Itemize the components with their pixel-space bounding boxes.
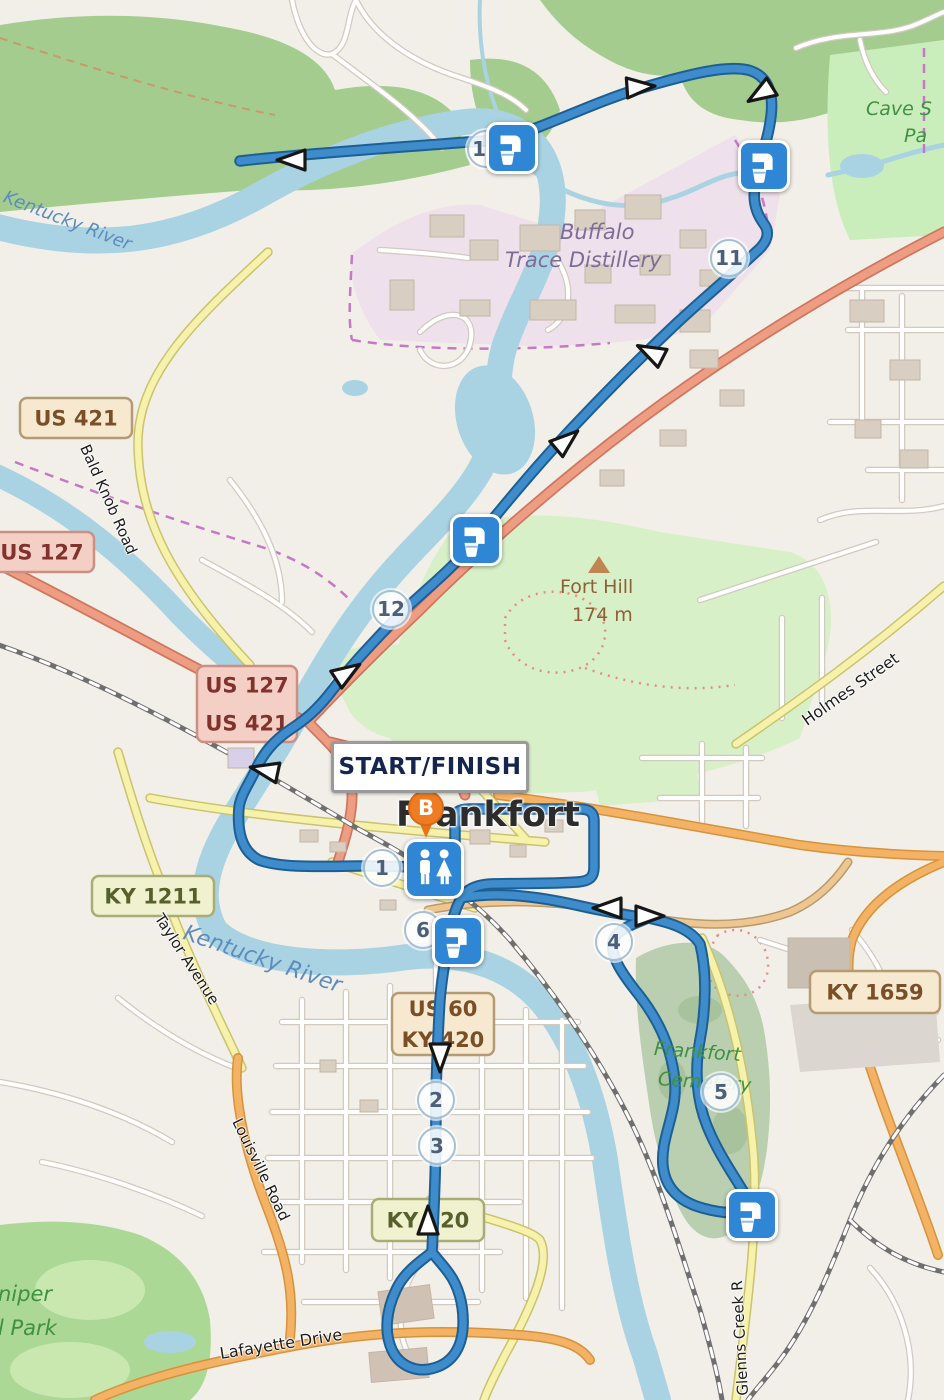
route-direction-arrow [426,1040,454,1076]
mile-marker-11[interactable]: 11 [710,239,748,277]
restroom-icon[interactable] [404,839,464,899]
mile-marker-3[interactable]: 3 [418,1127,456,1165]
mile-marker-4[interactable]: 4 [595,923,633,961]
route-direction-arrow [589,894,625,922]
svg-text:US 421: US 421 [205,712,288,736]
svg-text:US 421: US 421 [34,407,117,431]
svg-text:KY 1659: KY 1659 [826,981,923,1005]
course-map[interactable]: US 421US 127US 127US 421KY 1211KY 1659US… [0,0,944,1400]
route-direction-arrow [622,72,660,102]
mile-marker-1[interactable]: 1 [363,849,401,887]
route-direction-arrow [414,1202,442,1238]
route-shield-ky-1659: KY 1659 [810,971,940,1013]
water-stop-icon-5[interactable] [726,1189,778,1241]
b-marker[interactable]: B [408,790,444,826]
faucet-cup-icon [729,1192,775,1238]
faucet-cup-icon [741,143,787,189]
peak-icon [588,556,610,573]
route-shield-us-421: US 421 [20,398,132,438]
water-stop-icon-3[interactable] [450,514,502,566]
water-stop-icon-4[interactable] [432,915,484,967]
water-stop-icon-2[interactable] [738,140,790,192]
svg-text:US 127: US 127 [205,674,288,698]
faucet-cup-icon [453,517,499,563]
route-direction-arrow [273,146,309,174]
route-direction-arrow [632,902,668,930]
svg-text:KY 1211: KY 1211 [104,885,201,909]
mile-marker-5[interactable]: 5 [702,1073,740,1111]
base-map-canvas: US 421US 127US 127US 421KY 1211KY 1659US… [0,0,944,1400]
mile-marker-2[interactable]: 2 [417,1081,455,1119]
water-stop-icon-1[interactable] [486,122,538,174]
man-woman-icon [407,842,461,896]
svg-text:US 127: US 127 [0,541,83,565]
mile-marker-12[interactable]: 12 [372,590,410,628]
faucet-cup-icon [435,918,481,964]
route-shield-us-127: US 127 [0,532,94,572]
start-finish-label[interactable]: START/FINISH [331,741,529,793]
route-shield-ky-1211: KY 1211 [92,876,214,916]
faucet-cup-icon [489,125,535,171]
